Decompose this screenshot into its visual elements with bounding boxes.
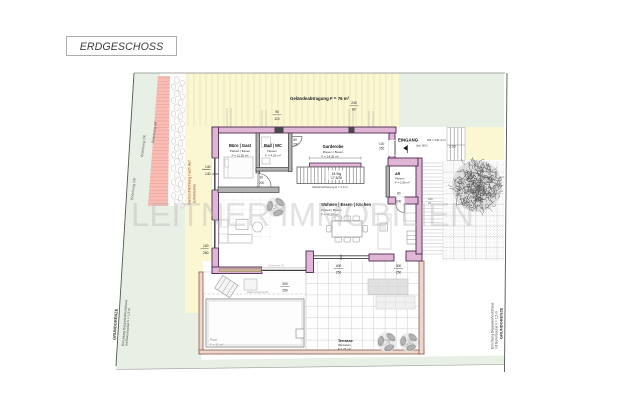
svg-text:Dachvorsprung 05: Dachvorsprung 05 [247,290,269,294]
svg-text:F = 4,95 m²: F = 4,95 m² [265,154,280,158]
svg-text:LEITNER IMMOBILIEN: LEITNER IMMOBILIEN [131,196,474,233]
svg-text:90: 90 [275,110,279,114]
svg-text:Schiebetür 05: Schiebetür 05 [268,263,285,267]
svg-text:250: 250 [336,271,342,275]
svg-text:400: 400 [336,264,342,268]
svg-text:Bad | WC: Bad | WC [264,143,282,148]
svg-text:Absturzsicherung H = 1,0 m: Absturzsicherung H = 1,0 m [312,185,348,189]
svg-text:260: 260 [203,251,209,255]
svg-text:110: 110 [274,117,279,121]
svg-text:250: 250 [282,289,288,293]
svg-text:GRUNDGRENZE: GRUNDGRENZE [499,307,504,339]
svg-text:300: 300 [282,282,288,286]
svg-text:17,5/28: 17,5/28 [331,176,342,180]
svg-text:Geländeabtragung F = 76 m²: Geländeabtragung F = 76 m² [290,96,350,101]
svg-text:250: 250 [396,271,402,275]
svg-text:300: 300 [396,264,402,268]
svg-text:F = 2,95 m²: F = 2,95 m² [395,181,410,185]
svg-text:F = 14,26 m²: F = 14,26 m² [321,155,338,159]
svg-text:90: 90 [260,176,264,180]
svg-text:250: 250 [379,147,385,151]
svg-text:Wfl = 242,4 m²: Wfl = 242,4 m² [427,138,446,142]
svg-text:Büro | Gast: Büro | Gast [229,143,252,148]
svg-text:140: 140 [205,165,211,169]
svg-text:60: 60 [352,108,356,112]
svg-text:80: 80 [397,192,401,196]
svg-text:Garderobe: Garderobe [323,144,344,149]
svg-text:AR: AR [395,172,401,176]
svg-text:80: 80 [294,138,298,142]
svg-text:(bel. BG): (bel. BG) [416,144,428,148]
svg-text:200: 200 [293,143,299,147]
svg-text:200: 200 [259,181,265,185]
svg-text:100: 100 [203,244,209,248]
svg-text:EINGANG: EINGANG [398,138,419,143]
svg-text:100: 100 [379,142,385,146]
svg-text:Pool: Pool [210,338,217,342]
svg-text:Parkett | Besen: Parkett | Besen [230,149,251,153]
svg-text:F = 32 m²: F = 32 m² [210,343,223,347]
svg-text:Fliesen | Besen: Fliesen | Besen [323,150,344,154]
svg-text:Fliesen: Fliesen [267,149,277,153]
svg-text:140: 140 [205,172,211,176]
svg-text:F = 11,35 m²: F = 11,35 m² [232,154,249,158]
svg-text:240: 240 [351,101,357,105]
svg-text:F = 73 m²: F = 73 m² [338,347,350,351]
svg-text:ERDGESCHOSS: ERDGESCHOSS [80,41,164,53]
